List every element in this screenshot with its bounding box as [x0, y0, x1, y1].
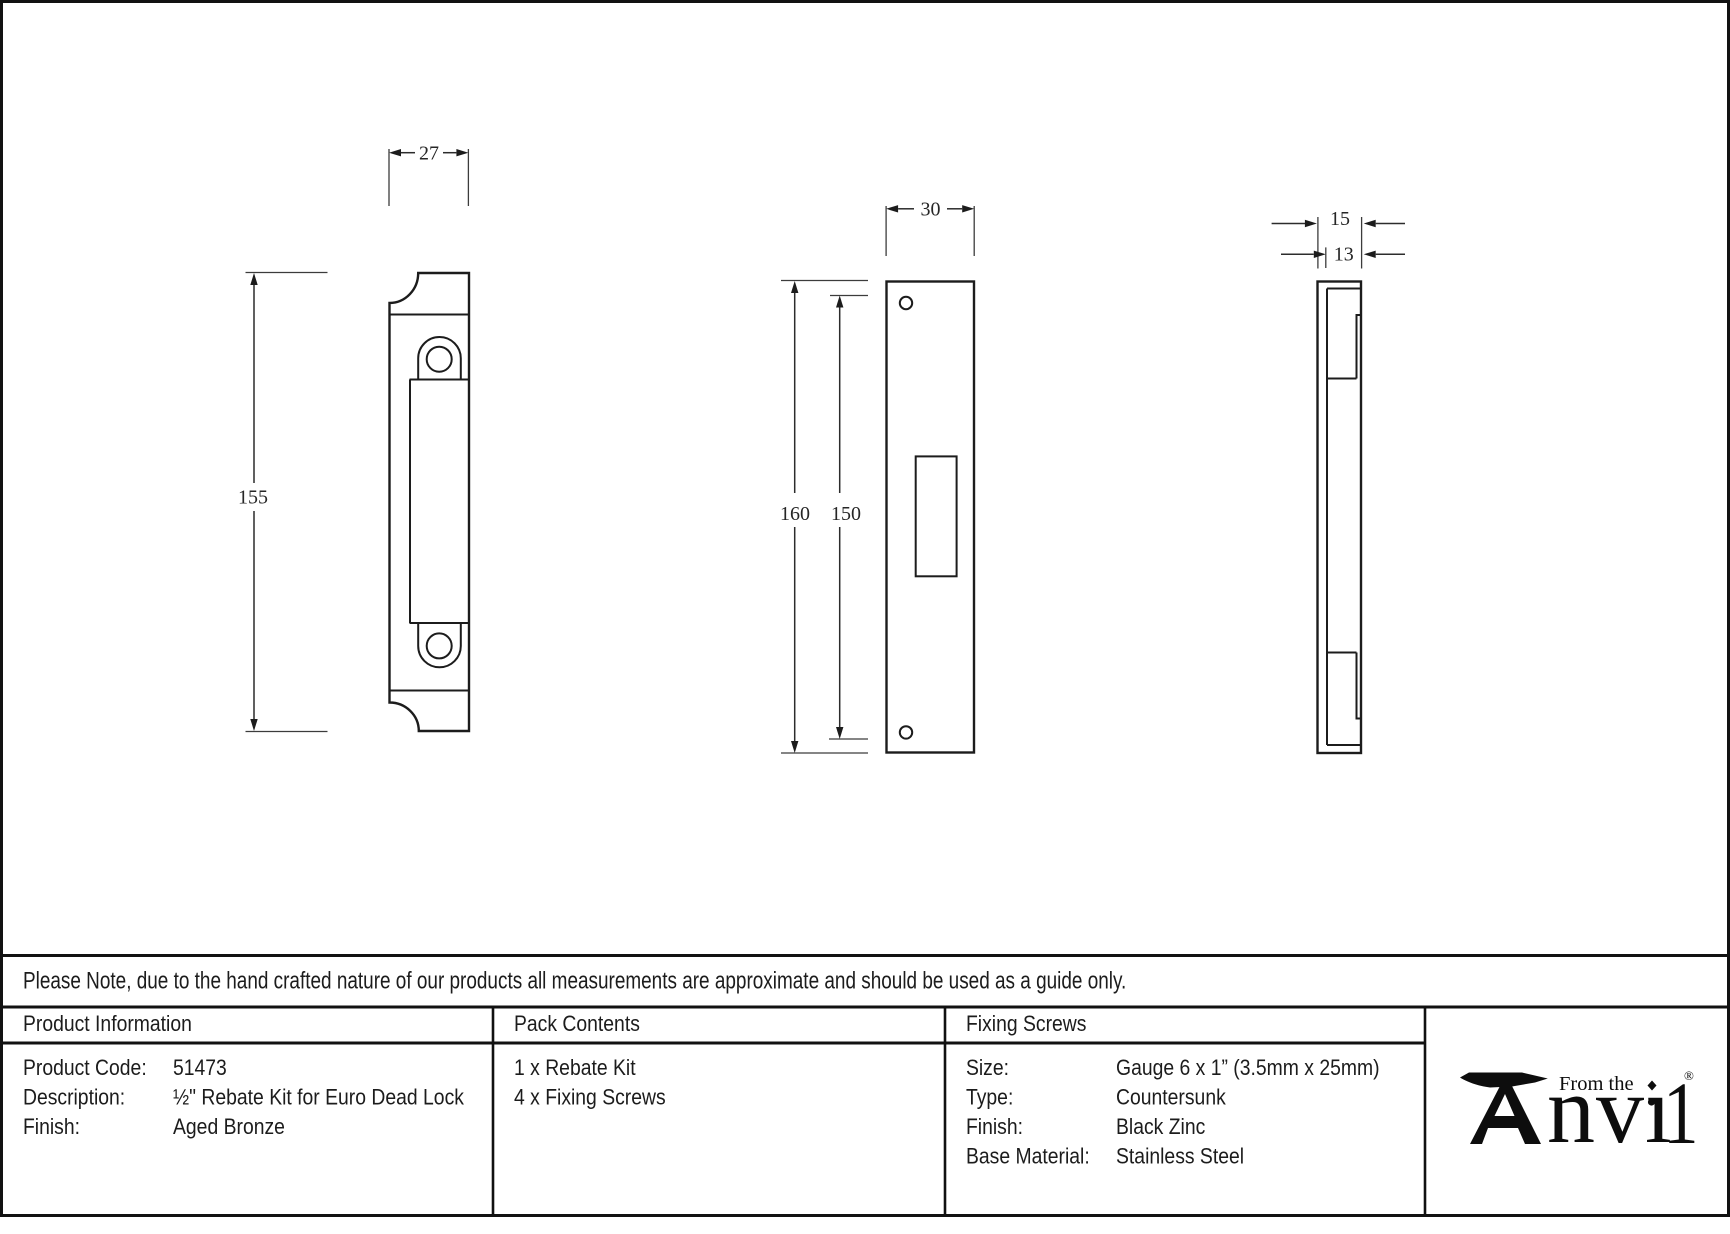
svg-text:27: 27	[419, 143, 439, 165]
svg-text:Type:: Type:	[966, 1085, 1013, 1109]
svg-text:From the: From the	[1559, 1073, 1634, 1095]
svg-text:Base Material:: Base Material:	[966, 1144, 1090, 1168]
svg-text:Stainless Steel: Stainless Steel	[1116, 1144, 1244, 1168]
svg-text:Pack Contents: Pack Contents	[514, 1012, 640, 1036]
svg-text:30: 30	[921, 199, 941, 221]
svg-text:15: 15	[1330, 208, 1350, 230]
svg-text:155: 155	[238, 487, 268, 509]
svg-text:Aged Bronze: Aged Bronze	[173, 1115, 285, 1139]
svg-text:Size:: Size:	[966, 1056, 1009, 1080]
svg-text:Product Code:: Product Code:	[23, 1056, 147, 1080]
svg-text:Description:: Description:	[23, 1085, 125, 1109]
svg-text:Gauge 6 x 1” (3.5mm x 25mm): Gauge 6 x 1” (3.5mm x 25mm)	[1116, 1056, 1380, 1080]
svg-text:160: 160	[780, 503, 810, 525]
svg-text:Finish:: Finish:	[966, 1115, 1023, 1139]
svg-text:13: 13	[1334, 244, 1354, 266]
svg-text:4 x Fixing Screws: 4 x Fixing Screws	[514, 1085, 666, 1109]
svg-text:®: ®	[1684, 1068, 1694, 1083]
svg-text:½" Rebate Kit for Euro Dead Lo: ½" Rebate Kit for Euro Dead Lock	[173, 1085, 465, 1109]
svg-text:Product Information: Product Information	[23, 1012, 192, 1036]
svg-text:51473: 51473	[173, 1056, 227, 1080]
svg-text:Countersunk: Countersunk	[1116, 1085, 1226, 1109]
svg-text:Fixing Screws: Fixing Screws	[966, 1012, 1086, 1036]
svg-text:Black Zinc: Black Zinc	[1116, 1115, 1205, 1139]
svg-text:1 x Rebate Kit: 1 x Rebate Kit	[514, 1056, 636, 1080]
svg-text:150: 150	[831, 503, 861, 525]
svg-text:Please Note, due to the hand c: Please Note, due to the hand crafted nat…	[23, 966, 1126, 994]
svg-text:Finish:: Finish:	[23, 1115, 80, 1139]
